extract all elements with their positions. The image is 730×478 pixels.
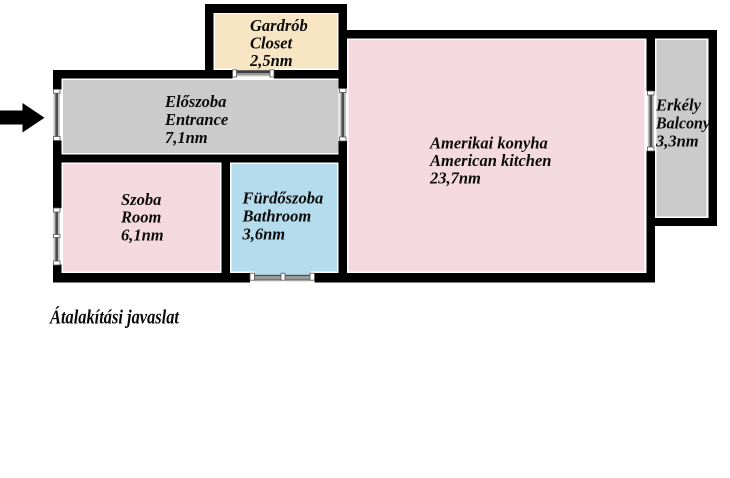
- svg-text:Amerikai konyha: Amerikai konyha: [429, 134, 548, 153]
- svg-text:Szoba: Szoba: [121, 190, 161, 209]
- svg-text:23,7nm: 23,7nm: [429, 169, 481, 188]
- svg-text:Erkély: Erkély: [655, 96, 702, 115]
- svg-text:Átalakítási javaslat: Átalakítási javaslat: [48, 306, 180, 329]
- svg-text:6,1nm: 6,1nm: [121, 226, 164, 245]
- svg-text:Előszoba: Előszoba: [164, 92, 226, 111]
- svg-text:Gardrób: Gardrób: [250, 16, 308, 35]
- svg-text:Room: Room: [120, 208, 162, 227]
- svg-text:Bathroom: Bathroom: [242, 207, 312, 226]
- svg-text:7,1nm: 7,1nm: [165, 128, 208, 147]
- svg-text:Fürdőszoba: Fürdőszoba: [242, 189, 324, 208]
- svg-text:Balcony: Balcony: [655, 114, 711, 133]
- svg-text:3,3nm: 3,3nm: [655, 132, 699, 151]
- svg-text:Entrance: Entrance: [164, 110, 228, 129]
- svg-text:Closet: Closet: [250, 34, 293, 53]
- svg-text:3,6nm: 3,6nm: [242, 225, 286, 244]
- svg-text:2,5nm: 2,5nm: [249, 51, 293, 70]
- svg-text:American kitchen: American kitchen: [429, 151, 551, 170]
